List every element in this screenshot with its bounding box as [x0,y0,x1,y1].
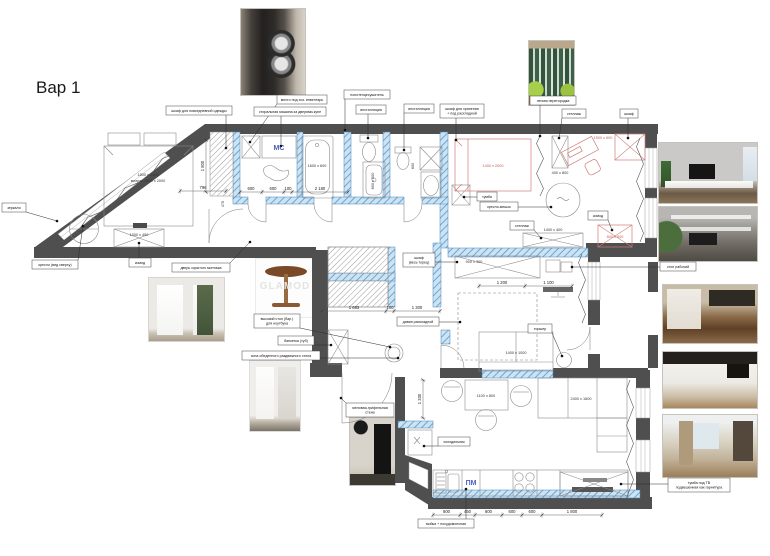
callout-fridge: холодильник [423,437,470,447]
svg-text:кресло (вид сверху): кресло (вид сверху) [38,263,71,267]
pillow [108,133,140,145]
fridge [408,430,432,455]
dining-chair [476,410,497,431]
svg-text:1 800: 1 800 [200,160,205,171]
svg-text:800 х 600: 800 х 600 [607,235,624,239]
svg-text:торшер: торшер [534,327,546,331]
svg-text:подвешенная как гарнитура: подвешенная как гарнитура [676,486,723,490]
svg-text:1400 х 1000: 1400 х 1000 [506,351,527,355]
kitchen-curtain-zigzag [627,380,634,498]
svg-text:стена: стена [365,411,374,415]
svg-text:1000 х 450: 1000 х 450 [130,233,149,237]
svg-text:1800 х 2100: 1800 х 2100 [138,173,159,177]
callout-beanbag: кресло-мешок [480,202,552,211]
svg-text:1400 х 400: 1400 х 400 [544,228,563,232]
balcony-door [567,327,590,350]
sink-basin [448,474,459,492]
svg-text:1 200: 1 200 [497,280,508,285]
dim-chain-vertical: 1 330 [417,378,425,419]
svg-text:холодильник: холодильник [443,440,465,444]
svg-text:450: 450 [464,509,472,514]
washbasin-unit [421,172,441,198]
work-desk-unit [546,260,560,272]
svg-text:800: 800 [443,509,451,514]
svg-text:банкетка (туб): банкетка (туб) [284,339,308,343]
callout-floor-lamp: торшер [528,324,563,357]
floor-plan-sheet: Вар 1 GLAMOD [0,0,770,556]
svg-text:диван раскладной: диван раскладной [403,320,434,324]
tv-on-dresser [133,223,147,228]
curtain-zigzags [62,136,644,498]
svg-text:100: 100 [285,186,293,191]
svg-text:стол рабочий: стол рабочий [667,265,689,269]
svg-text:600: 600 [270,186,278,191]
svg-text:зеркало: зеркало [7,206,20,210]
foldout-bed-zone [458,293,537,360]
svg-text:2 180: 2 180 [315,186,326,191]
svg-text:1500 х 600: 1500 х 600 [594,136,613,140]
callout-folding-sofa: диван раскладной [397,317,461,326]
svg-text:1 330: 1 330 [417,393,422,404]
svg-text:стиральная машина за дверями-к: стиральная машина за дверями-купе [259,110,321,114]
hob-burner [515,473,523,481]
svg-text:100: 100 [387,305,395,310]
floor-lamp-circle [557,353,572,368]
svg-text:600: 600 [529,509,537,514]
dim-chain: 8004508006006001 800 [431,509,603,517]
kitchen-window-1 [636,388,650,418]
svg-text:(весь торец): (весь торец) [409,261,430,265]
callout-komod-red: комод [588,211,613,231]
svg-text:мойка + посудомоечная: мойка + посудомоечная [426,522,466,526]
svg-text:меловая-грифельная: меловая-грифельная [352,406,388,410]
kids-desk [561,136,598,165]
dining-chair [442,381,463,402]
callout-chalk-wall: меловая-грифельнаястена [340,397,394,417]
kitchen-window-2 [636,440,650,472]
svg-text:кресло-мешок: кресло-мешок [487,205,511,209]
svg-text:инсталляция: инсталляция [360,108,382,112]
bedroom-closet [210,132,233,196]
svg-text:инсталляция: инсталляция [408,107,430,111]
living-door [441,345,464,368]
svg-text:шкаф для хранения: шкаф для хранения [445,107,478,111]
svg-text:полотенцесушитель: полотенцесушитель [350,93,384,97]
svg-text:400 х 800: 400 х 800 [552,171,569,175]
living-curtain-zigzag [579,254,586,323]
toilet-1 [363,143,376,162]
hall-closet-lower [328,281,388,307]
svg-text:для ноутбука: для ноутбука [266,322,288,326]
desk-chair [584,158,602,176]
svg-text:1 683: 1 683 [349,305,360,310]
svg-text:1 800: 1 800 [567,509,578,514]
svg-text:900 х 300: 900 х 300 [466,260,483,264]
svg-text:800: 800 [485,509,493,514]
kids-partition-zigzag [537,136,544,196]
round-rug [546,183,580,217]
bathroom-door [314,204,332,222]
svg-text:место под хоз. инвентарь: место под хоз. инвентарь [281,98,324,102]
dishwasher-label: ПМ [466,480,477,487]
svg-text:дверь скрытого монтажа: дверь скрытого монтажа [180,266,221,270]
floor-plan-drawing: МС ПМ 7966006001002 1801 2001 1001 68310… [0,0,770,556]
hall-closet-upper [328,247,388,273]
svg-text:1600 х 600: 1600 х 600 [308,164,327,168]
callout-installation-1: инсталляция [356,105,386,139]
svg-text:комод: комод [593,214,604,218]
svg-text:+ под раскладной: + под раскладной [447,112,477,116]
svg-text:шкаф: шкаф [624,112,634,116]
svg-text:шкаф для повседневной одежды: шкаф для повседневной одежды [171,109,227,113]
living-window [588,262,600,300]
washbasin [424,176,439,196]
svg-text:2400 х 1600: 2400 х 1600 [571,397,592,401]
svg-text:800 х 500: 800 х 500 [371,173,375,190]
svg-text:стеллаж: стеллаж [567,112,581,116]
svg-text:600: 600 [411,163,415,169]
svg-text:1400 х 2000: 1400 х 2000 [483,164,504,168]
svg-text:600: 600 [509,509,517,514]
laundry-door [248,204,266,222]
svg-text:легкая перегородка: легкая перегородка [537,99,570,103]
svg-text:комод: комод [135,261,146,265]
washing-machine-label: МС [274,145,285,152]
svg-text:600: 600 [248,186,256,191]
wc-door [404,204,422,222]
callout-tumba: тумба [463,192,497,201]
svg-text:тумба: тумба [482,195,492,199]
svg-text:стеллаж: стеллаж [515,224,529,228]
laundry-basket [264,166,289,181]
svg-text:475: 475 [221,201,225,207]
tv-panel [543,287,573,292]
dining-chair [511,386,532,407]
kids-window-2 [645,198,657,238]
svg-text:зона обеденного раздвижного ст: зона обеденного раздвижного стола [251,354,311,358]
callout-labels: шкаф для повседневной одеждыместо под хо… [2,90,730,528]
hob-burner [526,473,534,481]
kids-window-1 [645,148,657,188]
toilet-2 [397,153,409,170]
bedroom-door [209,209,243,243]
svg-text:тумба под ТВ: тумба под ТВ [688,481,711,485]
pillow [144,133,176,145]
svg-text:матрас 1600 х 2000: матрас 1600 х 2000 [131,179,165,183]
svg-text:шкаф: шкаф [414,256,424,260]
svg-text:1 300: 1 300 [412,305,423,310]
callout-mirror: зеркало [2,203,58,222]
svg-text:высокий стол (бар.): высокий стол (бар.) [261,317,294,321]
svg-text:1 100: 1 100 [543,280,554,285]
svg-text:1100 х 800: 1100 х 800 [477,394,496,398]
